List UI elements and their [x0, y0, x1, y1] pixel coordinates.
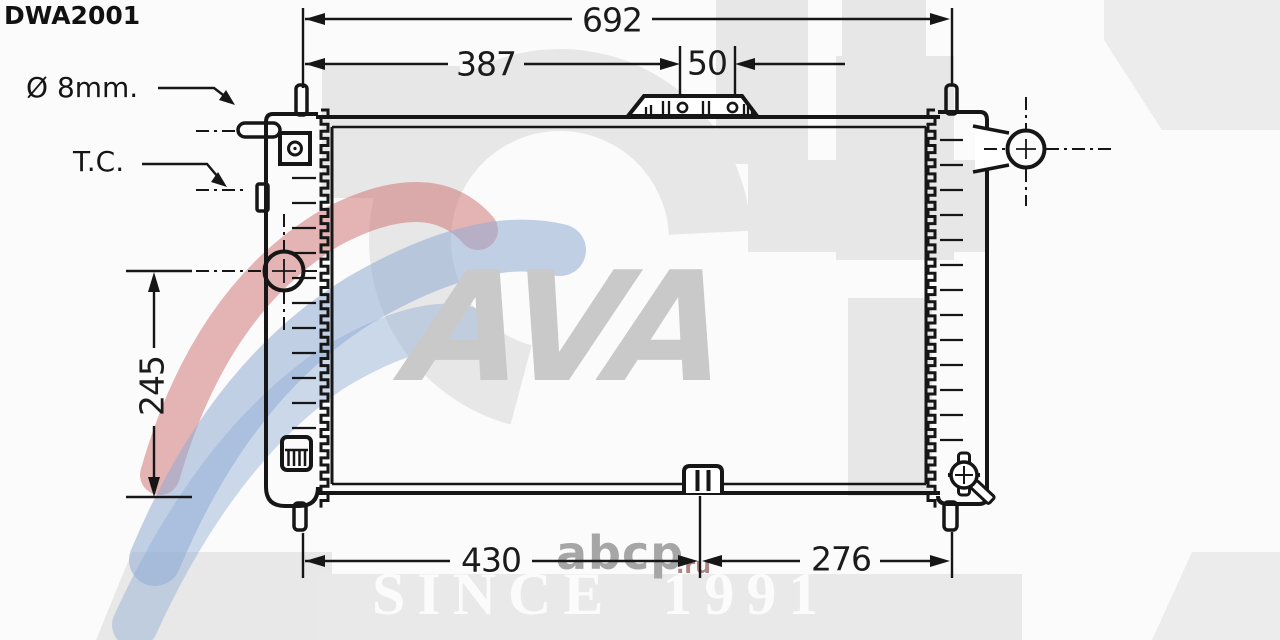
left-top-pin [296, 85, 307, 115]
right-top-pin [946, 85, 957, 114]
thermo-contact-tab [257, 184, 268, 211]
tc-leader [142, 164, 223, 183]
left-port [265, 252, 304, 291]
left-tank [238, 85, 328, 530]
dim-upper-width: 387 [456, 48, 516, 81]
radiator-line-drawing [0, 0, 1280, 640]
inlet-pipe-8mm [238, 123, 280, 137]
outlet-port [973, 126, 1045, 172]
left-mount-bracket [280, 133, 310, 164]
radiator-diagram-page: AVA SINCE 1991 abcp .ru [0, 0, 1280, 640]
tube-lines-right [940, 140, 963, 440]
tube-lines-left [292, 178, 316, 428]
top-mount-bracket [628, 96, 757, 116]
pipe-diameter-label: Ø 8mm. [26, 74, 138, 102]
part-number: DWA2001 [4, 3, 140, 28]
dim-bracket-spacing: 50 [687, 47, 727, 80]
dim-overall-width: 692 [582, 4, 642, 37]
right-bottom-pin [944, 502, 957, 530]
left-drain-grille [282, 437, 311, 470]
dim-core-height: 245 [136, 356, 169, 416]
dim-bottom-right-width: 276 [811, 543, 871, 576]
left-tank-gasket [321, 110, 328, 508]
bottom-mount-bracket [684, 466, 722, 493]
radiator-core [316, 117, 940, 493]
right-tank [928, 85, 1045, 530]
right-tank-gasket [928, 110, 935, 508]
dim-bottom-left-width: 430 [461, 544, 521, 577]
thermo-contact-label: T.C. [73, 148, 124, 176]
